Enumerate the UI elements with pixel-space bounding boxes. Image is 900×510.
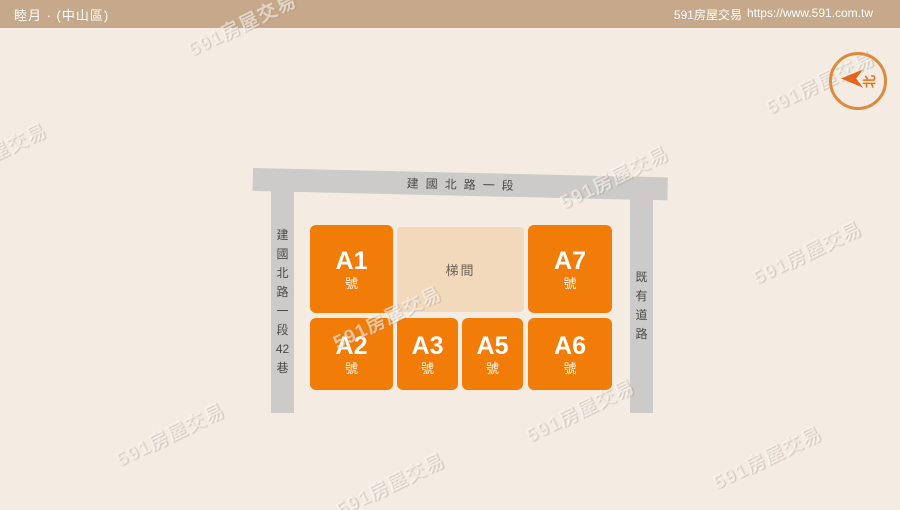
unit-suffix: 號 [563,277,576,290]
unit-label: A7 [554,249,586,274]
compass-button[interactable]: 北 [829,52,887,110]
unit-suffix: 號 [486,362,499,375]
road-top-label: 建國北路一段 [399,174,520,194]
unit-label: A2 [336,334,368,359]
unit-block-a3[interactable]: A3 號 [397,318,458,390]
road-left-char: 國 [276,248,288,260]
road-left-char: 巷 [276,362,288,374]
page-title: 睦月 · (中山區) [14,5,109,24]
road-left-char: 北 [276,267,288,279]
unit-label: A6 [554,334,586,359]
unit-suffix: 號 [345,362,358,375]
watermark: 591房屋交易 [334,451,449,510]
road-left-char: 一 [276,305,288,317]
brand-url: https://www.591.com.tw [747,6,873,23]
unit-label: A1 [336,249,368,274]
unit-suffix: 號 [563,362,576,375]
stairwell-block: 梯間 [397,227,524,312]
watermark: 591房屋交易 [0,121,51,191]
road-left-char: 路 [276,286,288,298]
road-right-char: 道 [635,309,647,321]
road-left: 建 國 北 路 一 段 42 巷 [271,190,294,413]
unit-block-a2[interactable]: A2 號 [310,318,393,390]
road-right-char: 既 [635,271,647,283]
unit-label: A3 [412,334,444,359]
unit-label: A5 [477,334,509,359]
brand-label: 591房屋交易 [674,6,742,23]
site-attribution: 591房屋交易 https://www.591.com.tw [674,6,873,23]
header-bar: 睦月 · (中山區) 591房屋交易 https://www.591.com.t… [0,0,900,28]
road-left-char: 42 [276,343,289,355]
road-right: 既 有 道 路 [630,197,653,413]
road-left-char: 建 [276,229,288,241]
road-right-char: 有 [635,290,647,302]
unit-block-a5[interactable]: A5 號 [462,318,523,390]
watermark: 591房屋交易 [711,424,826,494]
unit-block-a6[interactable]: A6 號 [528,318,612,390]
north-label: 北 [859,75,878,88]
unit-block-a1[interactable]: A1 號 [310,225,393,313]
stairwell-label: 梯間 [445,260,475,279]
road-right-char: 路 [635,328,647,340]
watermark: 591房屋交易 [751,219,866,289]
watermark: 591房屋交易 [114,401,229,471]
unit-suffix: 號 [421,362,434,375]
road-left-char: 段 [276,324,288,336]
unit-block-a7[interactable]: A7 號 [528,225,612,313]
road-top: 建國北路一段 [252,168,667,200]
unit-suffix: 號 [345,277,358,290]
